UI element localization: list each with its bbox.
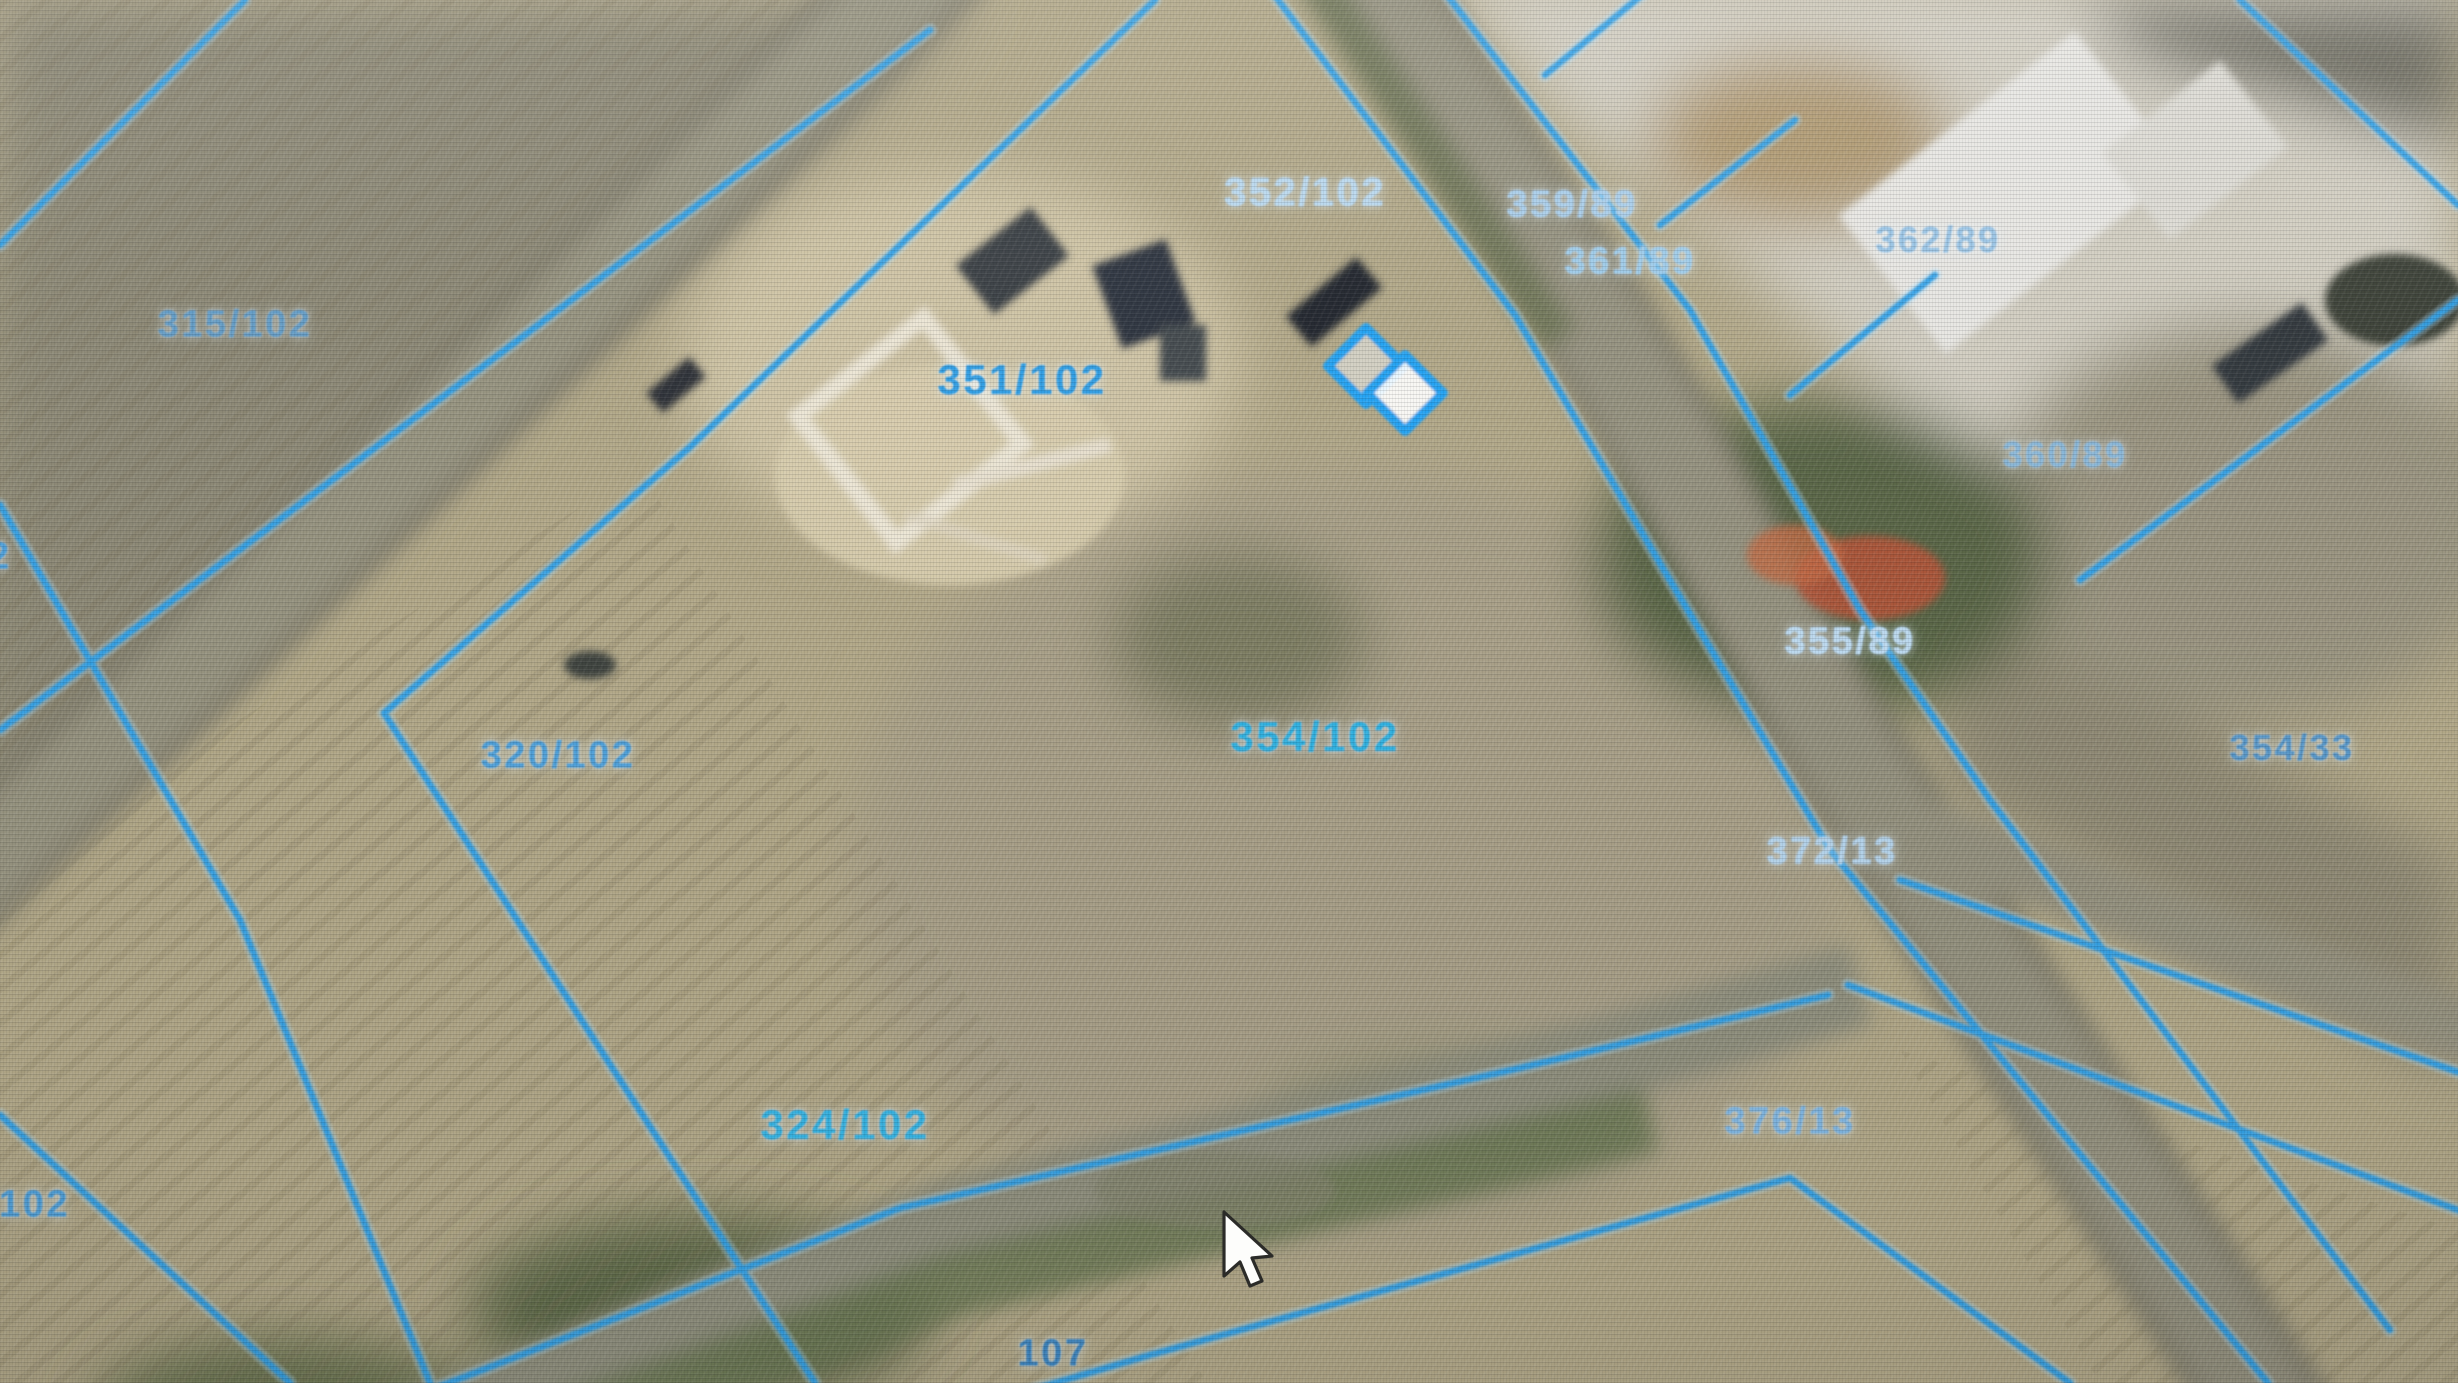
parcel-label-107: 107 bbox=[1018, 1333, 1089, 1376]
parcel-label-352-102: 352/102 bbox=[1224, 171, 1386, 216]
small-dark-object bbox=[564, 651, 616, 679]
parcel-label-359-89: 359/89 bbox=[1506, 184, 1637, 227]
parcel-label-354-102: 354/102 bbox=[1230, 713, 1399, 761]
parcel-label-351-102: 351/102 bbox=[937, 356, 1106, 404]
parcel-label-102-clipped: /102 bbox=[0, 1184, 70, 1227]
parcel-label-362-89: 362/89 bbox=[1875, 219, 2000, 261]
dark-object bbox=[1160, 325, 1206, 381]
parcel-label-361-89: 361/89 bbox=[1564, 241, 1695, 284]
parcel-label-315-102: 315/102 bbox=[158, 304, 313, 347]
parcel-label-355-89: 355/89 bbox=[1784, 621, 1915, 664]
map-viewport[interactable]: 315/102 351/102 352/102 359/89 361/89 36… bbox=[0, 0, 2458, 1383]
parcel-label-372-13: 372/13 bbox=[1766, 831, 1897, 874]
road-wear bbox=[1095, 1152, 1335, 1228]
parcel-label-360-89: 360/89 bbox=[2002, 434, 2127, 476]
parcel-label-324-102: 324/102 bbox=[760, 1101, 929, 1149]
scrub-patch bbox=[1110, 550, 1370, 730]
parcel-label-376-13: 376/13 bbox=[1724, 1101, 1855, 1144]
parcel-label-2-clipped: 2 bbox=[0, 536, 12, 579]
parcel-label-320-102: 320/102 bbox=[481, 735, 636, 778]
parcel-label-354-33: 354/33 bbox=[2229, 727, 2354, 769]
